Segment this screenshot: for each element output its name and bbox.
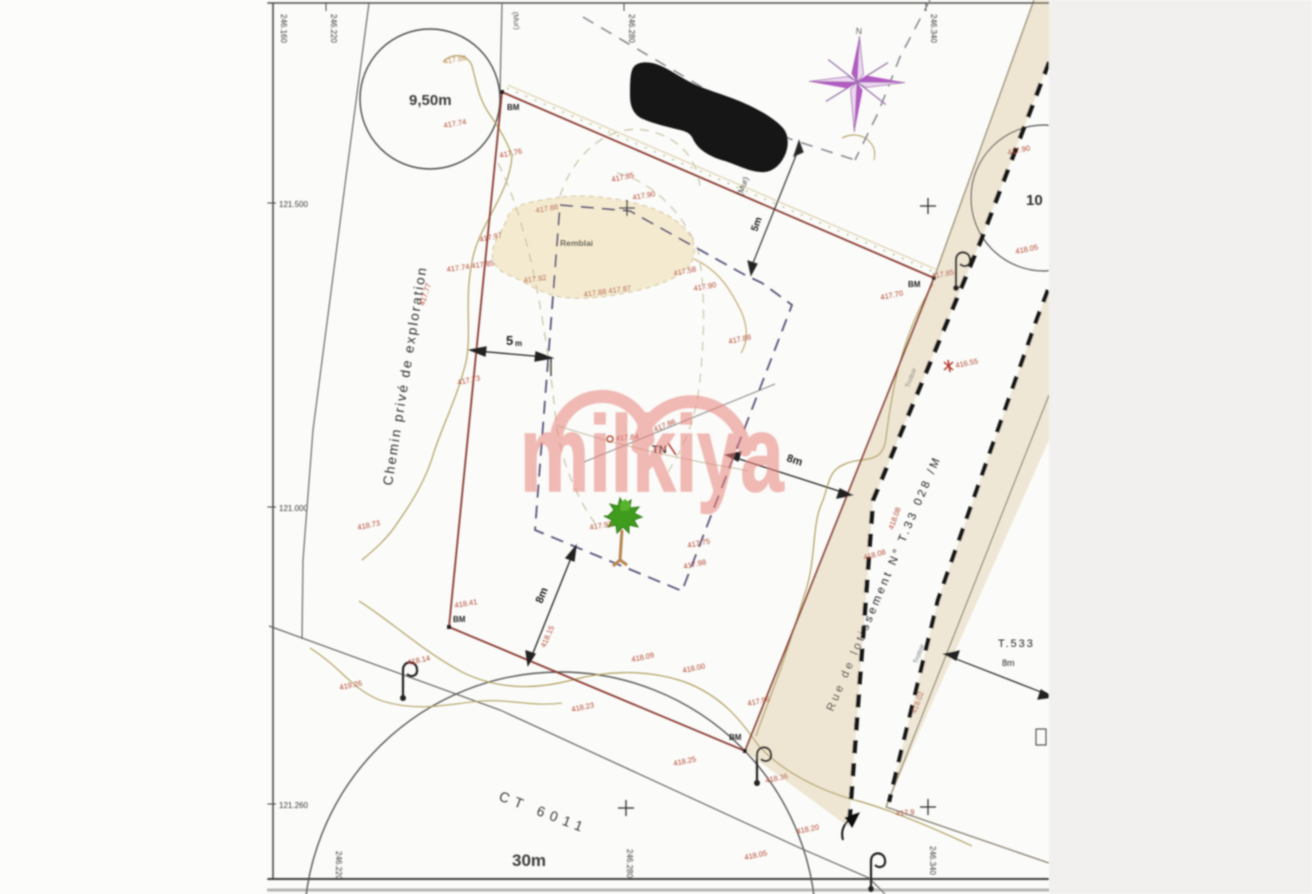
svg-text:30m: 30m (512, 851, 546, 870)
svg-text:246.160: 246.160 (279, 14, 288, 43)
svg-text:246.220: 246.220 (329, 14, 338, 43)
svg-text:N: N (855, 26, 862, 36)
svg-text:246.340: 246.340 (928, 846, 937, 875)
svg-text:Remblai: Remblai (560, 238, 593, 248)
svg-text:m: m (515, 339, 522, 348)
svg-text:(Mur): (Mur) (511, 11, 522, 30)
svg-text:T.533: T.533 (998, 638, 1035, 650)
svg-text:246.280: 246.280 (627, 14, 636, 43)
svg-text:BM: BM (453, 615, 466, 624)
svg-text:121.500: 121.500 (279, 200, 308, 209)
svg-text:BM: BM (507, 103, 520, 112)
svg-text:5: 5 (506, 333, 513, 348)
svg-text:8m: 8m (1002, 658, 1015, 668)
svg-text:246.340: 246.340 (929, 14, 938, 43)
svg-text:9,50m: 9,50m (409, 92, 452, 109)
svg-text:417.9: 417.9 (895, 807, 914, 818)
svg-text:121.000: 121.000 (279, 504, 308, 513)
svg-text:10: 10 (1026, 192, 1043, 209)
svg-text:246.280: 246.280 (625, 849, 634, 878)
svg-text:246.220: 246.220 (334, 851, 343, 880)
svg-text:milkiya: milkiya (520, 393, 784, 514)
svg-text:BM: BM (908, 280, 921, 289)
svg-text:121.260: 121.260 (279, 801, 308, 810)
svg-text:BM: BM (729, 733, 742, 742)
